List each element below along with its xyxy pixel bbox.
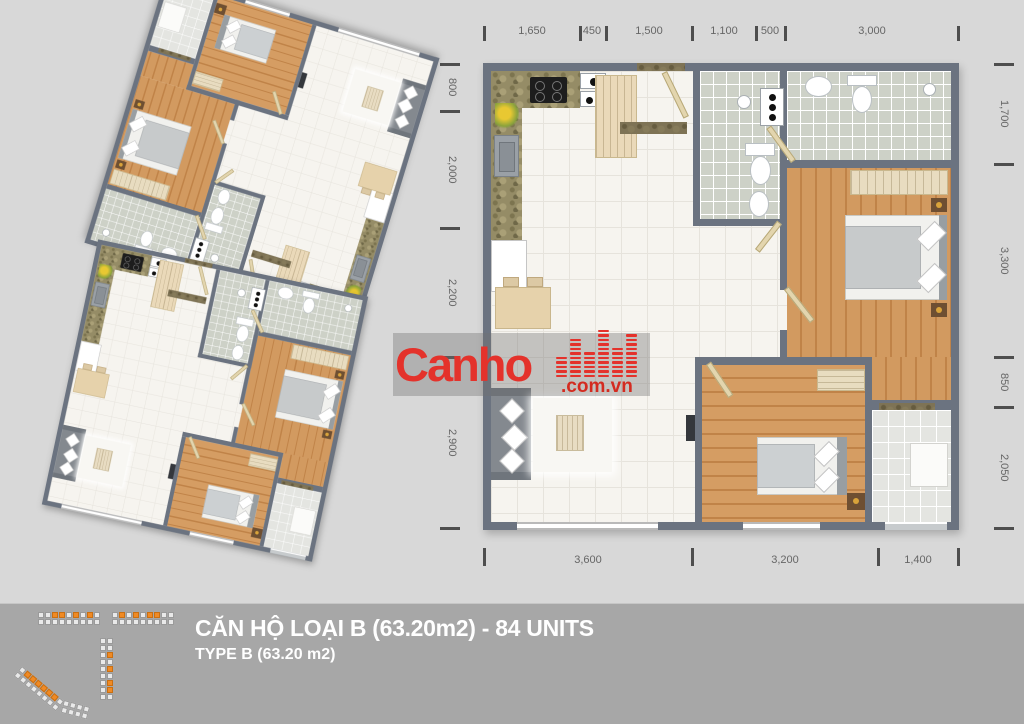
wall-master-left-a — [780, 168, 787, 290]
drain-icon — [923, 83, 936, 96]
wall-left — [483, 63, 491, 530]
entry-threshold — [637, 63, 685, 71]
toilet-icon — [745, 143, 775, 187]
isometric-floor-plan — [42, 239, 368, 561]
tv-cabinet-icon — [686, 415, 695, 441]
master-bedroom-extension — [872, 357, 951, 400]
toilet-icon — [847, 75, 877, 115]
wall-right — [951, 63, 959, 530]
dim-tick — [579, 26, 582, 41]
dim-bottom-1: 3,600 — [566, 554, 610, 566]
dim-top-3: 1,500 — [627, 25, 671, 37]
site-plan-legend — [0, 604, 190, 724]
dim-tick — [483, 548, 486, 566]
legend-block — [13, 666, 65, 713]
wardrobe-icon — [850, 170, 948, 195]
dim-tick — [483, 26, 486, 41]
nightstand-icon — [251, 527, 263, 539]
page-subtitle: TYPE B (63.20 m2) — [195, 646, 336, 664]
coffee-table-icon — [556, 415, 584, 451]
balcony-rail — [885, 522, 947, 530]
dim-tick — [691, 26, 694, 41]
dim-tick — [994, 527, 1014, 530]
dim-bottom-2: 3,200 — [763, 554, 807, 566]
dim-left-3: 2,200 — [446, 263, 458, 323]
balcony-table-icon — [910, 443, 948, 487]
cooktop-icon — [530, 77, 567, 103]
dim-left-1: 800 — [446, 57, 458, 117]
wall-bed2-right — [865, 357, 872, 522]
window-bedroom2 — [743, 522, 820, 530]
legend-block — [38, 612, 101, 626]
dim-tick — [994, 163, 1014, 166]
sink-icon — [494, 135, 519, 177]
balcony-sill — [879, 403, 935, 410]
logo-text: Canho — [395, 341, 531, 388]
wardrobe-icon — [817, 369, 865, 391]
entry-mat — [620, 122, 687, 134]
dim-tick — [957, 548, 960, 566]
dim-tick — [440, 110, 460, 113]
dim-top-1: 1,650 — [510, 25, 554, 37]
floor-plan — [483, 63, 959, 530]
dining-table-icon — [495, 287, 551, 329]
dim-tick — [440, 63, 460, 66]
dim-tick — [877, 548, 880, 566]
watermark: Canho .com.vn — [393, 333, 650, 396]
dim-right-2: 3,300 — [998, 231, 1010, 291]
bed-icon — [757, 437, 847, 495]
dim-left-2: 2,000 — [446, 140, 458, 200]
legend-block — [112, 612, 175, 626]
dim-tick — [440, 227, 460, 230]
dim-left-4: 2,900 — [446, 413, 458, 473]
dim-tick — [755, 26, 758, 41]
city-skyline-icon — [556, 335, 644, 377]
page-title: CĂN HỘ LOẠI B (63.20m2) - 84 UNITS — [195, 615, 594, 642]
dim-tick — [994, 356, 1014, 359]
dim-tick — [605, 26, 608, 41]
logo-suffix: .com.vn — [561, 377, 633, 396]
legend-block — [60, 700, 91, 721]
dim-top-4: 1,100 — [702, 25, 746, 37]
dim-tick — [784, 26, 787, 41]
basin-icon — [805, 76, 832, 97]
dim-right-1: 1,700 — [998, 84, 1010, 144]
title-band: CĂN HỘ LOẠI B (63.20m2) - 84 UNITS TYPE … — [0, 603, 1024, 724]
dim-tick — [691, 548, 694, 566]
wall-bed2-top — [695, 357, 872, 365]
wall-top — [483, 63, 959, 71]
entry-closet — [595, 75, 637, 158]
dim-top-6: 3,000 — [850, 25, 894, 37]
sofa-icon — [491, 388, 531, 480]
shaft-icon — [760, 88, 784, 126]
bed-icon — [845, 215, 947, 300]
dim-right-4: 2,050 — [998, 438, 1010, 498]
dim-tick — [994, 63, 1014, 66]
wall-bed2-left — [695, 365, 702, 522]
wall-bath1-left — [693, 71, 700, 226]
dim-right-3: 850 — [998, 352, 1010, 412]
page: Canho .com.vn 1,650 450 1,500 1,100 500 … — [0, 0, 1024, 724]
nightstand-icon — [322, 430, 333, 440]
shower-icon — [737, 95, 751, 109]
nightstand-icon — [334, 370, 345, 380]
dim-bottom-3: 1,400 — [896, 554, 940, 566]
dim-tick — [957, 26, 960, 41]
nightstand-icon — [931, 303, 947, 317]
dim-tick — [994, 406, 1014, 409]
legend-block — [100, 638, 114, 701]
bidet-icon — [749, 191, 769, 217]
wall-bath2-bottom — [787, 160, 951, 168]
plant-icon — [495, 103, 519, 129]
window-living — [517, 522, 658, 530]
nightstand-icon — [847, 493, 865, 510]
nightstand-icon — [931, 198, 947, 212]
dining-chair-icon — [527, 277, 543, 287]
dim-tick — [440, 527, 460, 530]
dining-chair-icon — [503, 277, 519, 287]
